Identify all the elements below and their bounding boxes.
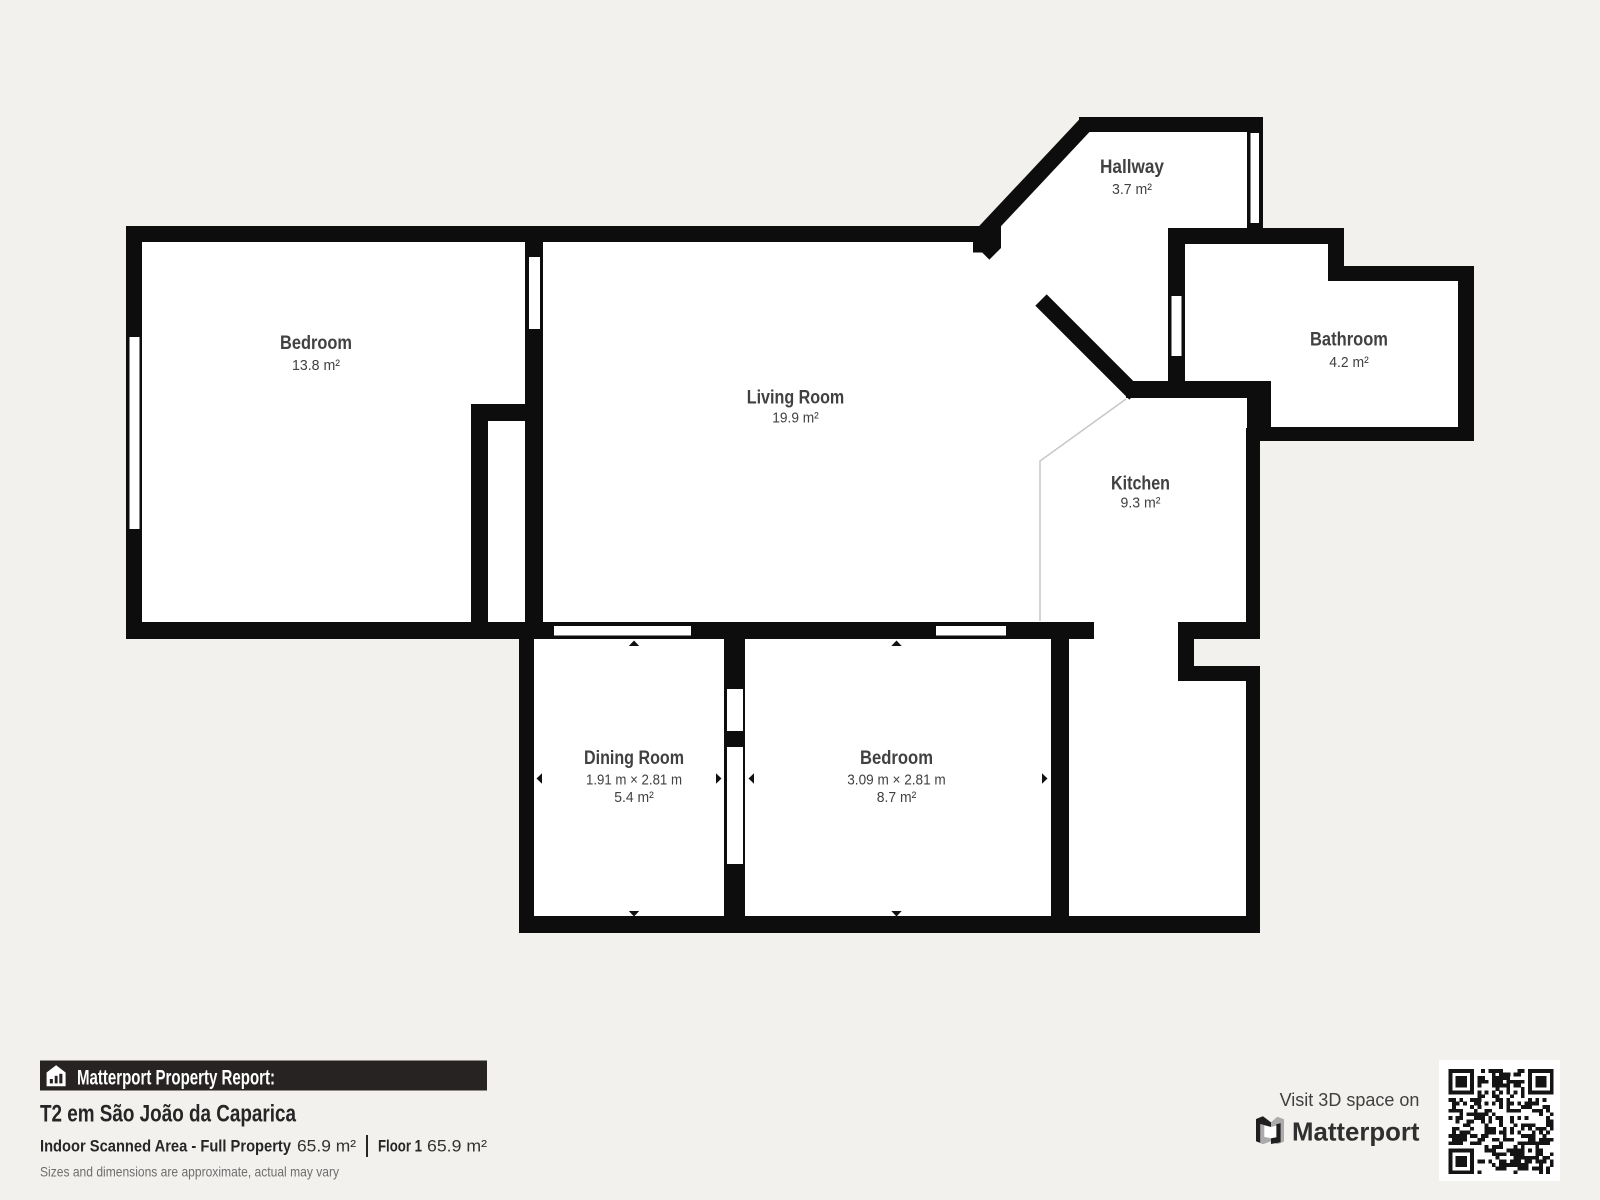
svg-text:Matterport Property Report:: Matterport Property Report: — [77, 1067, 275, 1090]
svg-text:3.7 m²: 3.7 m² — [1112, 181, 1152, 198]
svg-text:13.8 m²: 13.8 m² — [292, 357, 340, 374]
svg-text:Sizes and dimensions are appro: Sizes and dimensions are approximate, ac… — [40, 1164, 339, 1180]
svg-text:3.09 m × 2.81 m: 3.09 m × 2.81 m — [847, 772, 946, 789]
svg-text:65.9 m²: 65.9 m² — [427, 1137, 487, 1156]
svg-text:Dining Room: Dining Room — [584, 748, 684, 769]
svg-text:Indoor Scanned Area - Full Pro: Indoor Scanned Area - Full Property — [40, 1137, 291, 1156]
svg-text:Floor 1: Floor 1 — [378, 1137, 422, 1156]
svg-text:T2 em São João da Caparica: T2 em São João da Caparica — [40, 1101, 297, 1128]
svg-text:4.2 m²: 4.2 m² — [1329, 354, 1369, 371]
svg-text:Living Room: Living Room — [747, 388, 845, 409]
svg-text:Bathroom: Bathroom — [1310, 330, 1388, 351]
svg-text:Visit 3D space on: Visit 3D space on — [1280, 1090, 1420, 1110]
svg-text:8.7 m²: 8.7 m² — [877, 789, 917, 806]
svg-text:Kitchen: Kitchen — [1111, 474, 1170, 495]
svg-text:1.91 m × 2.81 m: 1.91 m × 2.81 m — [586, 772, 682, 789]
svg-text:Matterport: Matterport — [1292, 1117, 1420, 1147]
svg-text:19.9 m²: 19.9 m² — [772, 410, 819, 427]
svg-text:Bedroom: Bedroom — [280, 333, 352, 354]
svg-text:Hallway: Hallway — [1100, 157, 1164, 178]
svg-text:5.4 m²: 5.4 m² — [614, 789, 654, 806]
svg-text:Bedroom: Bedroom — [860, 748, 933, 769]
svg-text:9.3 m²: 9.3 m² — [1121, 495, 1161, 512]
svg-text:65.9 m²: 65.9 m² — [297, 1137, 356, 1156]
